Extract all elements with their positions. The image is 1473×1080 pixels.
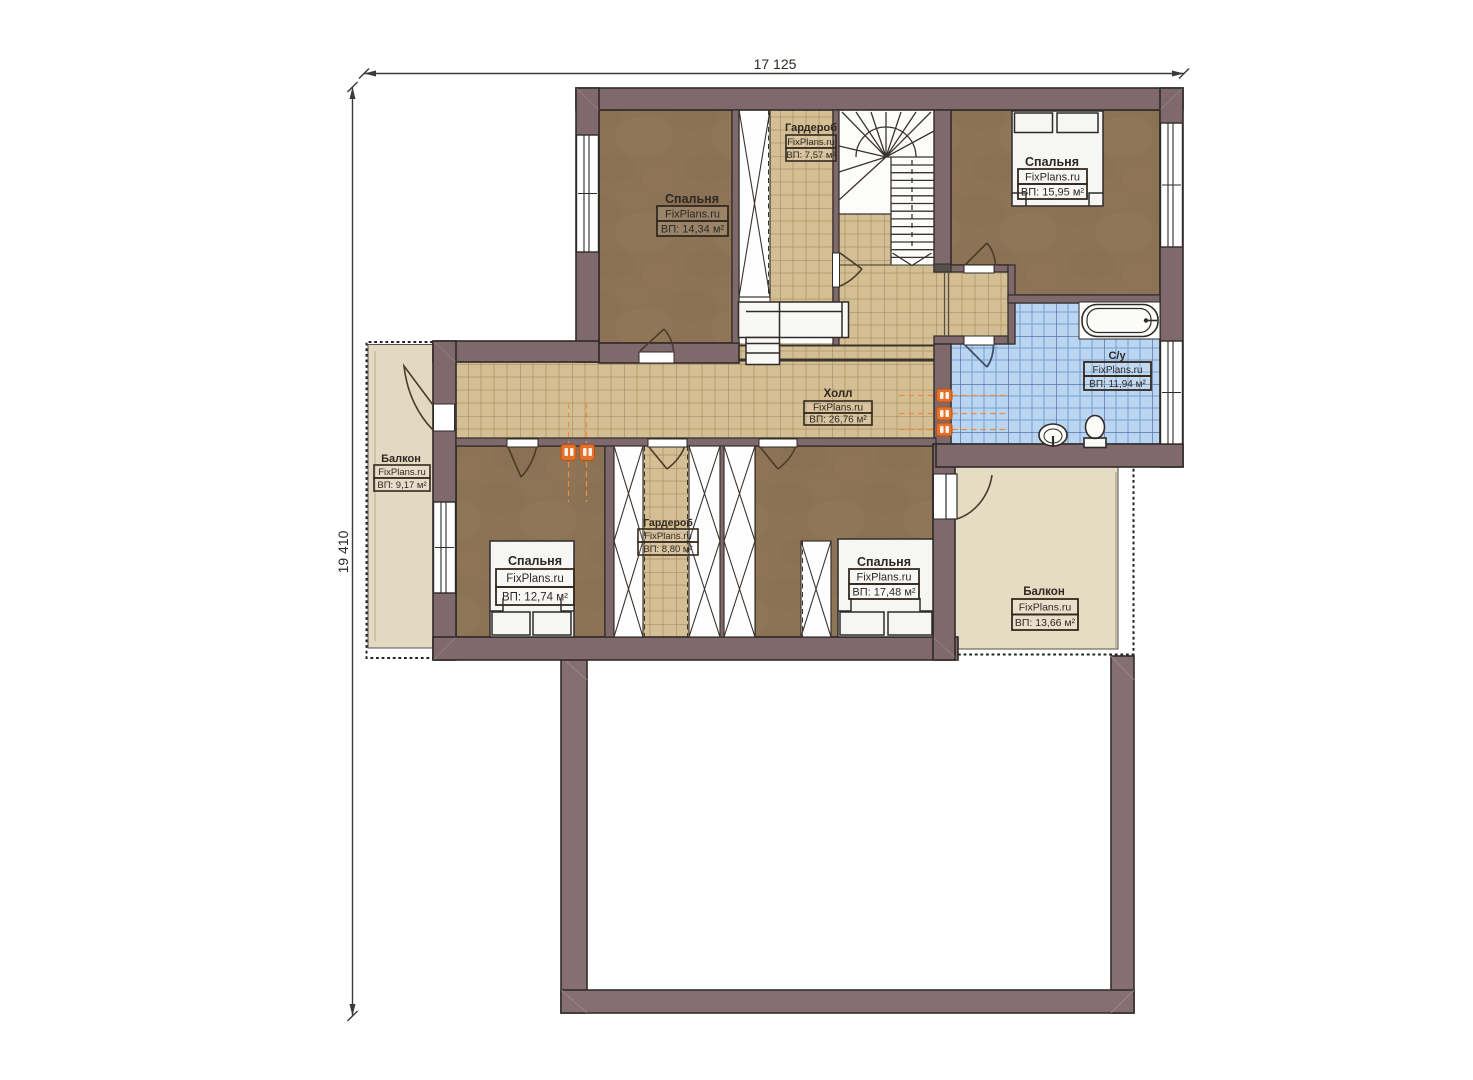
- svg-text:ВП: 17,48 м²: ВП: 17,48 м²: [852, 587, 916, 599]
- svg-text:Спальня: Спальня: [857, 555, 911, 569]
- svg-text:ВП: 12,74 м²: ВП: 12,74 м²: [502, 592, 568, 604]
- svg-text:Балкон: Балкон: [1023, 586, 1065, 598]
- svg-text:ВП: 9,17 м²: ВП: 9,17 м²: [377, 480, 426, 491]
- svg-text:FixPlans.ru: FixPlans.ru: [644, 531, 692, 542]
- svg-text:FixPlans.ru: FixPlans.ru: [506, 573, 564, 585]
- svg-text:FixPlans.ru: FixPlans.ru: [1025, 172, 1080, 184]
- svg-text:ВП: 26,76 м²: ВП: 26,76 м²: [809, 415, 867, 426]
- svg-text:Гардероб: Гардероб: [643, 517, 693, 529]
- svg-text:Спальня: Спальня: [665, 192, 719, 206]
- svg-text:ВП: 14,34 м²: ВП: 14,34 м²: [661, 224, 725, 236]
- svg-text:Спальня: Спальня: [1025, 155, 1079, 169]
- svg-text:FixPlans.ru: FixPlans.ru: [1019, 602, 1072, 614]
- svg-text:ВП: 11,94 м²: ВП: 11,94 м²: [1089, 379, 1146, 390]
- svg-text:Гардероб: Гардероб: [785, 122, 837, 134]
- svg-text:FixPlans.ru: FixPlans.ru: [787, 137, 835, 148]
- svg-text:FixPlans.ru: FixPlans.ru: [665, 209, 720, 221]
- svg-text:ВП: 8,80 м²: ВП: 8,80 м²: [643, 544, 692, 555]
- svg-text:FixPlans.ru: FixPlans.ru: [1092, 365, 1142, 376]
- svg-text:FixPlans.ru: FixPlans.ru: [378, 467, 426, 478]
- svg-text:ВП: 7,57 м²: ВП: 7,57 м²: [786, 150, 835, 161]
- svg-text:FixPlans.ru: FixPlans.ru: [856, 572, 911, 584]
- svg-text:С/у: С/у: [1108, 350, 1126, 362]
- svg-text:FixPlans.ru: FixPlans.ru: [813, 403, 863, 414]
- svg-text:ВП: 15,95 м²: ВП: 15,95 м²: [1021, 187, 1085, 199]
- svg-text:17 125: 17 125: [754, 56, 797, 72]
- svg-text:Холл: Холл: [824, 388, 853, 400]
- svg-text:Спальня: Спальня: [508, 554, 562, 568]
- svg-text:ВП: 13,66 м²: ВП: 13,66 м²: [1015, 617, 1076, 629]
- svg-text:19 410: 19 410: [335, 530, 351, 573]
- svg-text:Балкон: Балкон: [381, 453, 421, 465]
